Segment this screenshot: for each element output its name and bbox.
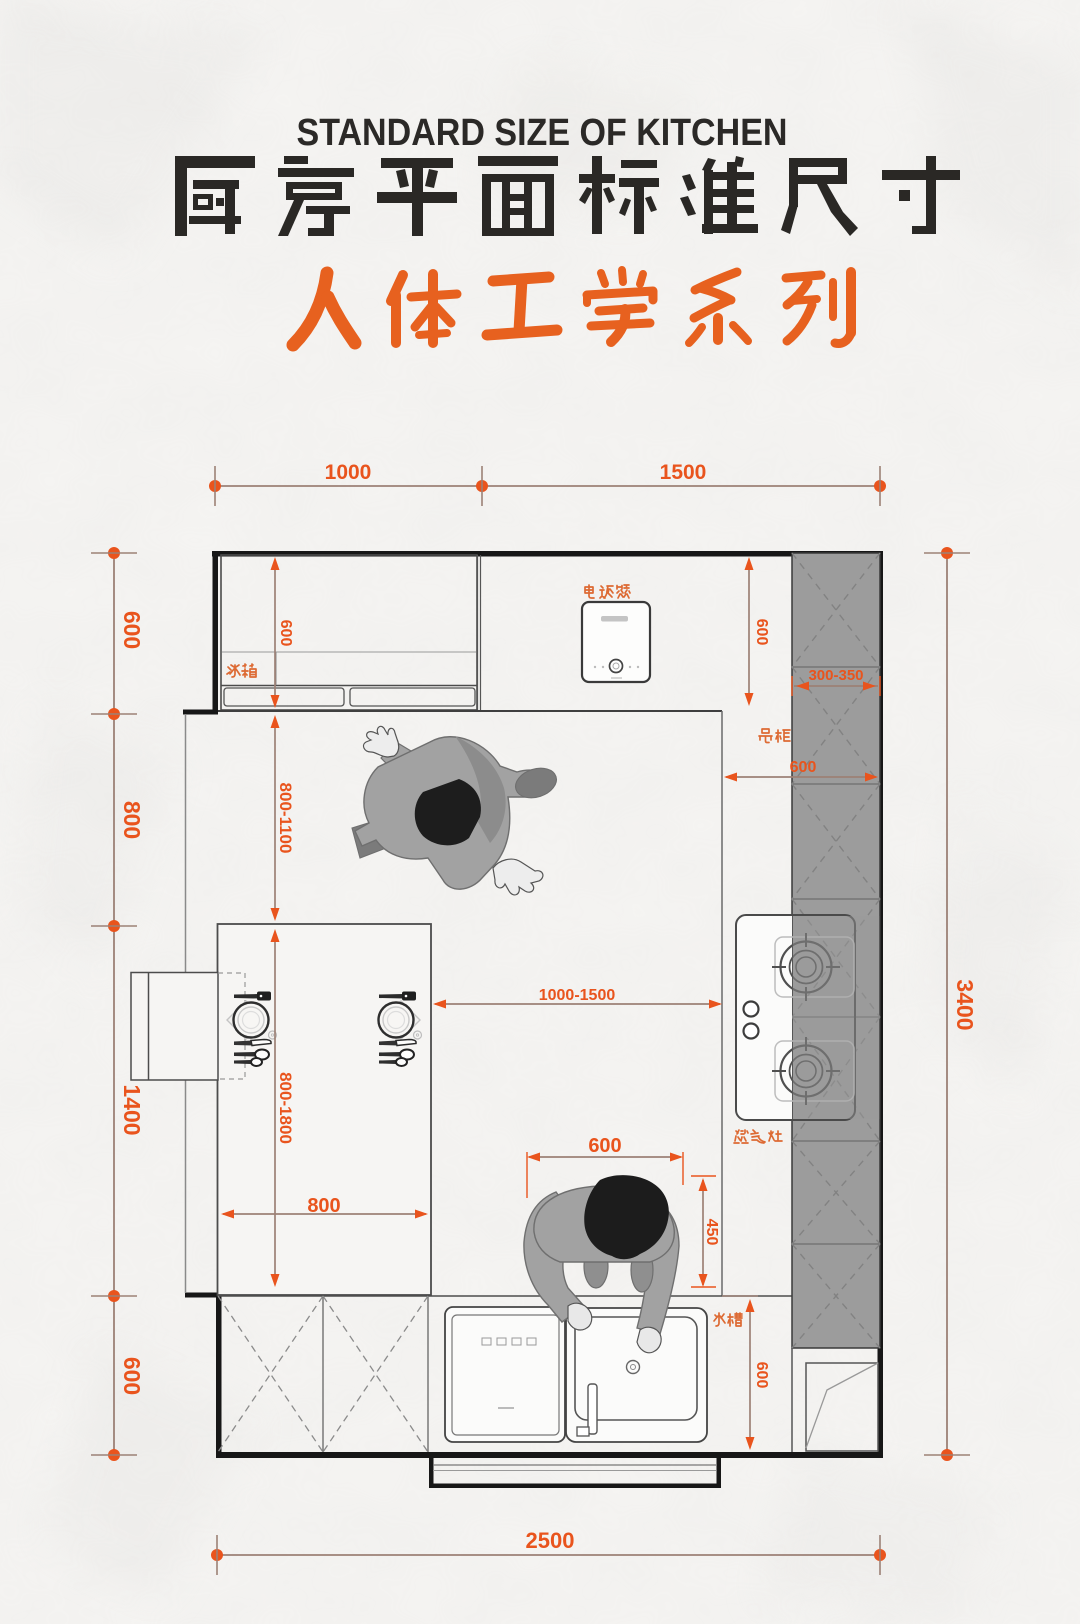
svg-text:600: 600 [119, 611, 145, 649]
svg-text:600: 600 [588, 1135, 621, 1157]
svg-text:STANDARD SIZE OF KITCHEN: STANDARD SIZE OF KITCHEN [297, 112, 788, 154]
svg-text:600: 600 [753, 619, 770, 646]
svg-text:300-350: 300-350 [808, 667, 863, 684]
svg-text:1000: 1000 [325, 461, 372, 484]
svg-text:800-1800: 800-1800 [276, 1072, 295, 1144]
svg-text:600: 600 [119, 1357, 145, 1395]
svg-text:1000-1500: 1000-1500 [539, 987, 616, 1004]
svg-text:800: 800 [307, 1195, 340, 1217]
svg-text:800-1100: 800-1100 [276, 783, 295, 854]
svg-text:600: 600 [753, 1362, 770, 1389]
svg-text:1500: 1500 [660, 461, 707, 484]
svg-text:450: 450 [703, 1219, 720, 1246]
svg-text:800: 800 [119, 801, 145, 839]
svg-text:3400: 3400 [952, 979, 978, 1030]
svg-text:600: 600 [790, 759, 817, 776]
svg-text:600: 600 [277, 620, 294, 647]
svg-text:1400: 1400 [119, 1084, 145, 1135]
svg-text:2500: 2500 [526, 1528, 575, 1553]
